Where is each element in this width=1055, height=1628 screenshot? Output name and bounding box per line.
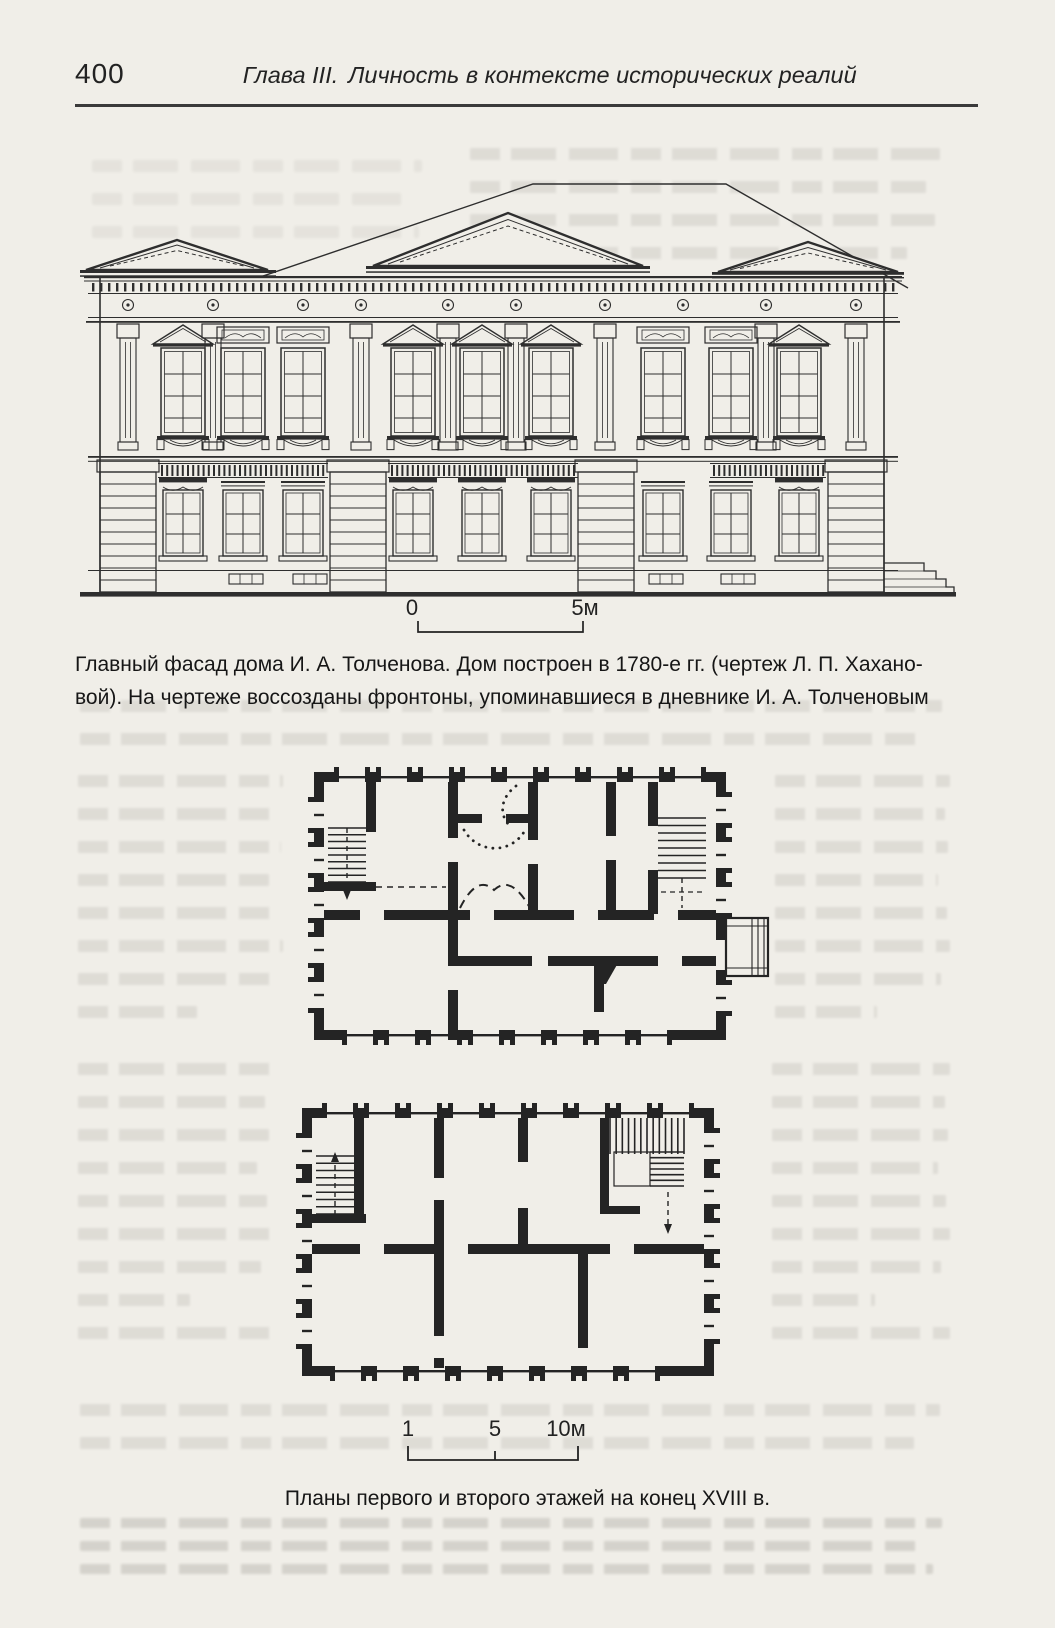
- facade-scale-label-5m: 5м: [571, 595, 598, 620]
- plan2-marks: [331, 1152, 672, 1234]
- facade-static: [80, 184, 956, 597]
- facade-caption-line-1: Главный фасад дома И. А. Толченова. Дом …: [75, 648, 985, 681]
- bleed-through-region: [775, 775, 950, 1039]
- chapter-heading: Глава III.Личность в контексте историчес…: [243, 62, 857, 89]
- plan2-interior-walls: [312, 1118, 704, 1368]
- pediment-right: [712, 242, 904, 278]
- cornice-dentils: [92, 283, 894, 292]
- bleed-through-region: [78, 775, 283, 1039]
- plans-scale-label-1: 1: [402, 1416, 414, 1441]
- plan1-interior-walls: [324, 782, 716, 1040]
- page-number: 400: [75, 58, 125, 90]
- plans-scale-label-10m: 10м: [546, 1416, 586, 1441]
- plans-caption: Планы первого и второго этажей на конец …: [75, 1487, 980, 1511]
- book-page: 400 Глава III.Личность в контексте истор…: [0, 0, 1055, 1628]
- bleed-through-region: [78, 1063, 271, 1360]
- header-rule: [75, 104, 978, 107]
- bleed-through-region: [772, 1063, 950, 1360]
- plan1-entrance-porch: [726, 918, 768, 976]
- chapter-label: Глава III.: [243, 62, 339, 88]
- plans-scale-label-5: 5: [489, 1416, 501, 1441]
- facade-caption: Главный фасад дома И. А. Толченова. Дом …: [75, 648, 985, 714]
- floor-plan-second: [288, 1096, 758, 1396]
- scale-bar-plans: 1 5 10м: [378, 1414, 618, 1476]
- entrance-steps: [884, 563, 954, 592]
- facade-scale-label-0: 0: [406, 595, 418, 620]
- facade-drawing: 0 5м: [78, 126, 958, 638]
- pediment-left: [80, 240, 276, 277]
- floor-plan-first: [300, 760, 770, 1060]
- chapter-title: Личность в контексте исторических реалий: [348, 62, 856, 88]
- pediment-center: [366, 213, 650, 273]
- ground-line: [80, 592, 956, 597]
- plan2-staircases: [316, 1118, 684, 1214]
- page-header: 400 Глава III.Личность в контексте истор…: [75, 58, 975, 90]
- facade-caption-line-2: вой). На чертеже воссозданы фронтоны, уп…: [75, 681, 985, 714]
- scale-bar-facade: 0 5м: [406, 595, 599, 632]
- bleed-through-region: [80, 1518, 942, 1587]
